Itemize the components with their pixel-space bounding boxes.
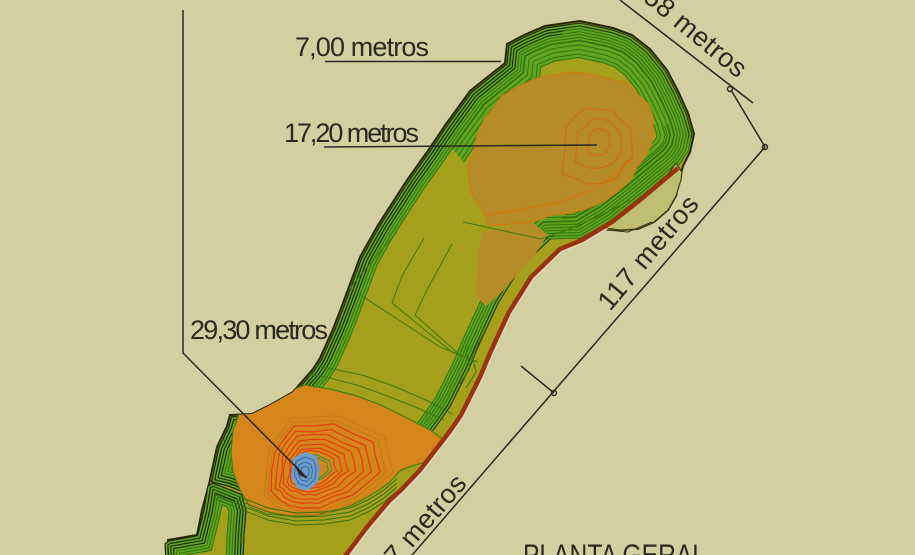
- svg-text:17,20 metros: 17,20 metros: [284, 118, 419, 148]
- svg-text:7,00 metros: 7,00 metros: [295, 32, 429, 62]
- svg-text:29,30 metros: 29,30 metros: [190, 315, 328, 345]
- svg-text:PLANTA GERAL: PLANTA GERAL: [523, 539, 706, 555]
